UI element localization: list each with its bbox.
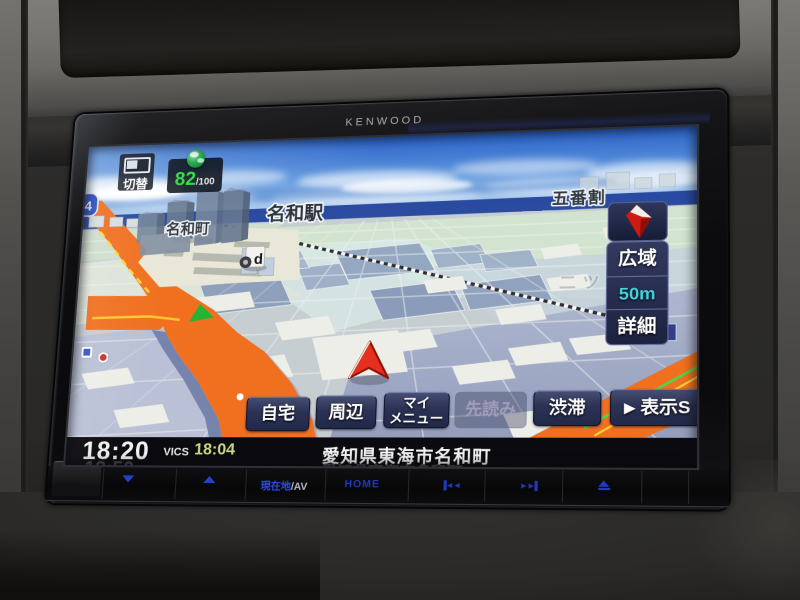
svg-text:五番割: 五番割 — [552, 187, 606, 208]
svg-text:名和町: 名和町 — [166, 219, 211, 237]
svg-text:名和駅: 名和駅 — [266, 202, 324, 225]
svg-text:d: d — [254, 251, 264, 267]
